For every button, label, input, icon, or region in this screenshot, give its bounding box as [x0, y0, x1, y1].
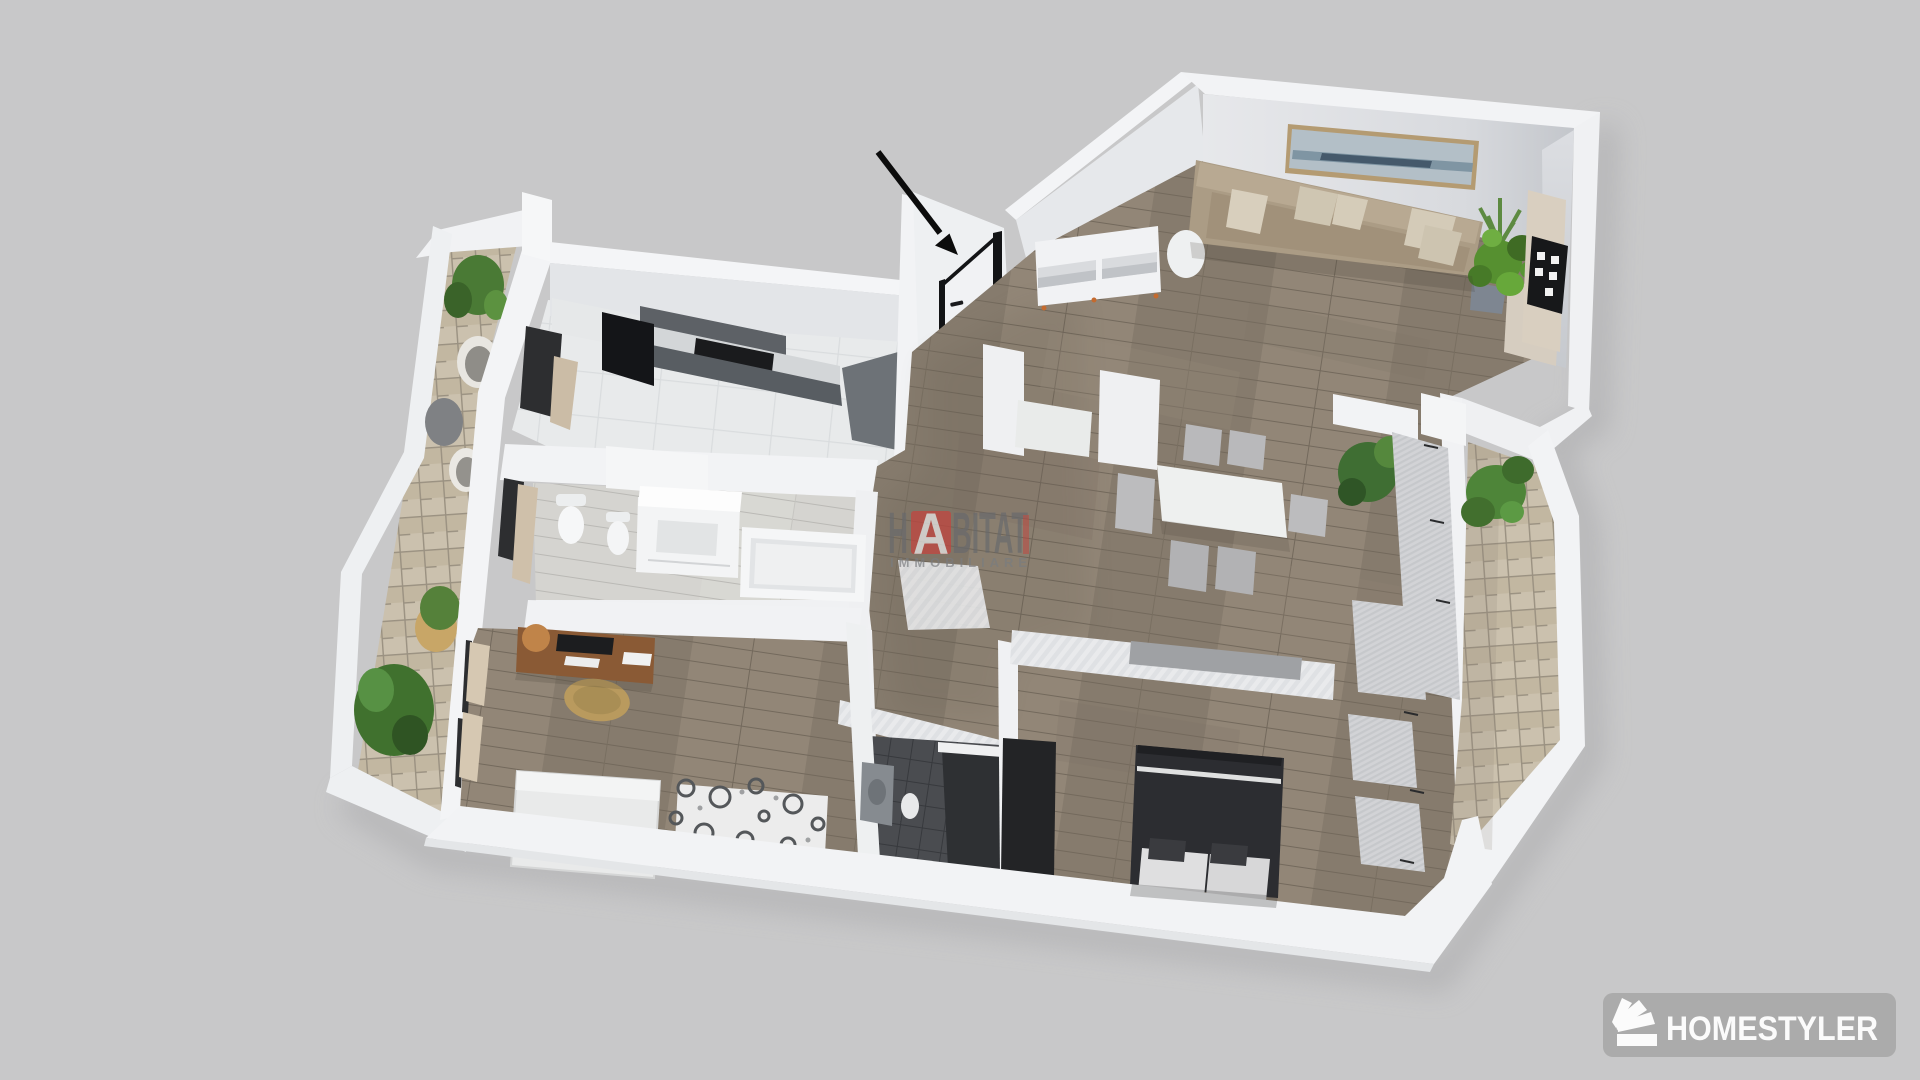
svg-text:HOMESTYLER: HOMESTYLER — [1666, 1010, 1878, 1048]
